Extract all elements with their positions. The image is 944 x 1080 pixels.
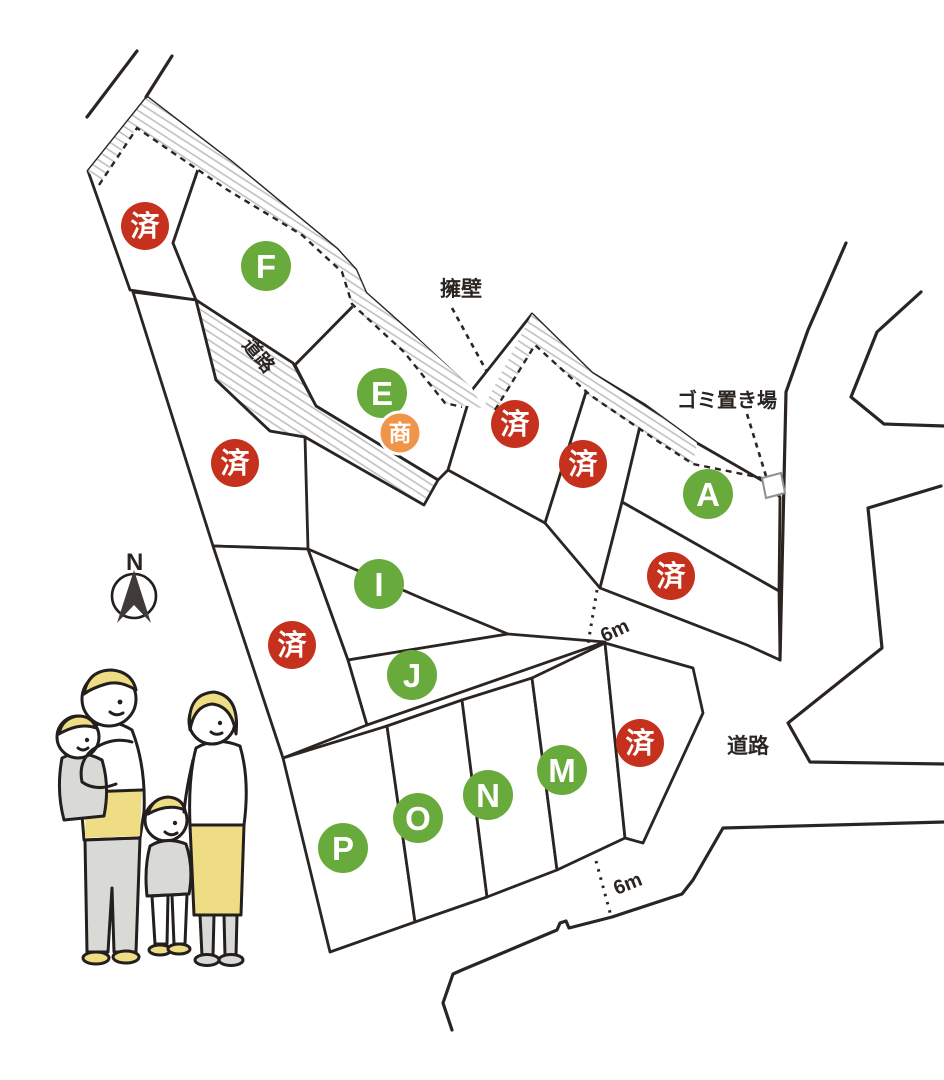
family-illustration <box>57 670 246 966</box>
father-shoe <box>113 951 139 963</box>
mother-shoe <box>219 955 243 966</box>
father-eye <box>118 700 123 705</box>
lot-letter: M <box>548 752 576 789</box>
child-shirt <box>146 840 191 896</box>
lot-marker-F[interactable]: F <box>241 241 291 291</box>
sold-marker: 済 <box>121 202 169 250</box>
commercial-marker: 商 <box>379 412 421 454</box>
garbage-station-leader <box>747 414 766 476</box>
child-eye <box>173 821 177 825</box>
sold-marker: 済 <box>647 552 695 600</box>
road-width-tick-lower <box>596 861 611 916</box>
father-shoe <box>83 952 109 964</box>
road-width-tick-upper <box>588 590 597 644</box>
sold-text: 済 <box>277 629 307 662</box>
road-edge-right-upper <box>851 292 944 426</box>
mother-torso <box>190 741 247 825</box>
road-edge-right-lower <box>788 486 944 764</box>
mother-shoe <box>195 955 219 966</box>
mother-eye <box>218 721 222 725</box>
lot-letter: F <box>256 248 276 285</box>
sold-text: 済 <box>130 210 160 243</box>
sold-marker: 済 <box>491 400 539 448</box>
commercial-text: 商 <box>389 420 412 446</box>
sold-marker: 済 <box>559 440 607 488</box>
child-shoe <box>168 944 190 954</box>
lot-letter: I <box>374 566 383 603</box>
lot-letter: E <box>371 375 393 412</box>
lot-marker-E[interactable]: E <box>357 368 407 418</box>
retaining-wall-label: 擁壁 <box>440 277 482 301</box>
compass-north-label: N <box>126 549 143 576</box>
sold-marker: 済 <box>268 621 316 669</box>
mother-leg <box>224 915 237 956</box>
garbage-station-label: ゴミ置き場 <box>677 388 777 412</box>
sold-text: 済 <box>500 408 530 441</box>
sold-marker: 済 <box>211 439 259 487</box>
road-label-right: 道路 <box>727 734 770 758</box>
subdivision-map: 擁壁 ゴミ置き場 道路 道路 6m 6m N 済 済 済 済 済 済 済 F E… <box>0 0 944 1080</box>
child-leg <box>172 894 187 944</box>
lot-marker-N[interactable]: N <box>463 770 513 820</box>
lot-marker-J[interactable]: J <box>387 650 437 700</box>
lot-letter: O <box>405 800 431 837</box>
lot-letter: A <box>696 476 720 513</box>
sold-text: 済 <box>568 448 598 481</box>
road-edge-topleft-1 <box>87 51 137 117</box>
sold-text: 済 <box>220 447 250 480</box>
retaining-wall-leader <box>452 308 487 372</box>
baby-eye <box>85 738 89 742</box>
father-pants <box>85 838 140 952</box>
compass: N <box>112 549 156 623</box>
lot-marker-I[interactable]: I <box>354 559 404 609</box>
lot-letter: P <box>332 830 354 867</box>
sold-text: 済 <box>656 560 686 593</box>
mother-skirt <box>190 825 244 915</box>
mother-leg <box>200 915 214 956</box>
lot-map-canvas: 擁壁 ゴミ置き場 道路 道路 6m 6m N 済 済 済 済 済 済 済 F E… <box>0 0 944 1080</box>
road-edge-topleft-2 <box>146 56 172 97</box>
road-width-label-lower: 6m <box>610 869 645 900</box>
sold-marker: 済 <box>616 719 664 767</box>
lot-marker-P[interactable]: P <box>318 823 368 873</box>
child-leg <box>152 895 168 944</box>
lot-marker-O[interactable]: O <box>393 793 443 843</box>
garbage-station-marker <box>762 473 785 498</box>
lot-letter: J <box>403 657 421 694</box>
figure-child <box>145 797 191 955</box>
lot-marker-M[interactable]: M <box>537 745 587 795</box>
lot-letter: N <box>476 777 500 814</box>
lot-marker-A[interactable]: A <box>683 469 733 519</box>
sold-text: 済 <box>625 727 655 760</box>
figure-mother <box>184 692 246 966</box>
road-edge-right-west <box>780 243 846 660</box>
